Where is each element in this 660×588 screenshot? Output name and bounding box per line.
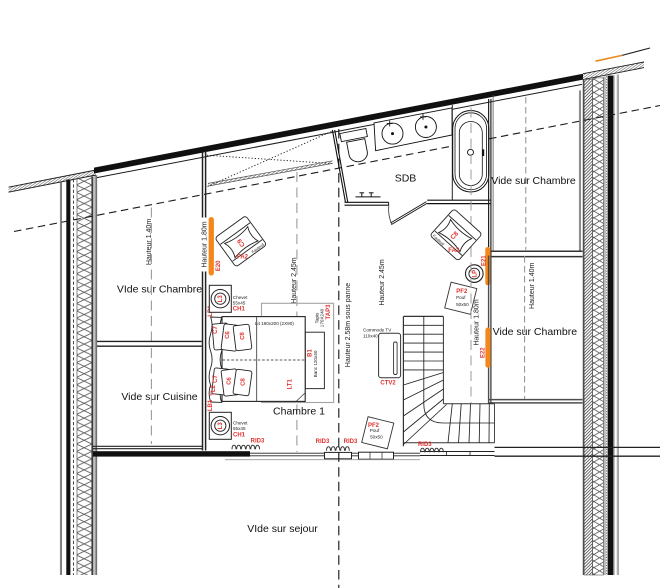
svg-text:Commode TV: Commode TV (363, 327, 392, 332)
svg-text:55x45: 55x45 (233, 426, 246, 431)
svg-text:FA2: FA2 (237, 254, 249, 260)
svg-text:50x50: 50x50 (456, 302, 469, 307)
svg-text:C6: C6 (225, 330, 232, 339)
svg-text:C7: C7 (213, 375, 219, 383)
svg-text:E20: E20 (216, 260, 222, 271)
svg-text:E21: E21 (482, 255, 488, 266)
svg-text:Hauteur 2.45m: Hauteur 2.45m (379, 259, 386, 305)
svg-text:CH1: CH1 (233, 433, 246, 439)
svg-text:Vide sur Chambre: Vide sur Chambre (493, 326, 578, 338)
svg-text:170X240: 170X240 (320, 308, 325, 327)
svg-text:Hauteur 2.58m sous panne: Hauteur 2.58m sous panne (345, 283, 352, 368)
svg-text:Hauteur 1.80m: Hauteur 1.80m (202, 221, 209, 267)
svg-text:E22: E22 (480, 347, 486, 358)
svg-text:VIde sur Chambre: VIde sur Chambre (117, 283, 202, 295)
svg-text:C6: C6 (226, 376, 232, 385)
svg-text:PF2: PF2 (456, 289, 468, 295)
svg-text:LB1: LB1 (208, 399, 214, 411)
svg-text:RID3: RID3 (418, 442, 432, 448)
svg-text:TAP3: TAP3 (326, 304, 332, 320)
svg-text:Hauteur 2.45m: Hauteur 2.45m (291, 257, 298, 303)
svg-text:SDB: SDB (395, 172, 417, 184)
svg-text:B1: B1 (307, 349, 313, 357)
svg-text:110x40: 110x40 (363, 333, 378, 338)
svg-text:VIde sur sejour: VIde sur sejour (247, 523, 318, 535)
svg-text:50x50: 50x50 (370, 435, 383, 440)
svg-text:Hauteur 1.40m: Hauteur 1.40m (146, 219, 153, 265)
svg-text:Chevet: Chevet (233, 421, 248, 426)
svg-text:CH1: CH1 (233, 307, 246, 313)
svg-text:Hauteur 1.40m: Hauteur 1.40m (529, 262, 536, 308)
svg-text:CTV2: CTV2 (380, 381, 396, 387)
svg-text:Vide sur Chambre: Vide sur Chambre (491, 175, 576, 187)
svg-text:RID3: RID3 (344, 439, 358, 445)
svg-text:Hauteur 1.80m: Hauteur 1.80m (474, 299, 481, 345)
svg-text:Chevet: Chevet (233, 295, 248, 300)
svg-text:L3: L3 (218, 295, 224, 303)
svg-text:C8: C8 (240, 331, 247, 340)
svg-text:Pouf: Pouf (370, 428, 380, 433)
svg-text:Vide sur Cuisine: Vide sur Cuisine (121, 391, 197, 403)
svg-text:FA2: FA2 (448, 248, 460, 254)
svg-text:55x45: 55x45 (233, 300, 246, 305)
svg-text:RID3: RID3 (316, 439, 330, 445)
svg-text:C7: C7 (213, 326, 219, 334)
svg-text:Lit 180x200 (2X90): Lit 180x200 (2X90) (255, 321, 294, 326)
svg-text:C8: C8 (240, 377, 246, 386)
svg-text:L3: L3 (218, 422, 224, 430)
svg-text:RID3: RID3 (251, 438, 265, 444)
svg-text:TL2: TL2 (211, 385, 217, 396)
svg-text:Chambre 1: Chambre 1 (273, 406, 325, 418)
svg-text:LP: LP (472, 270, 478, 278)
svg-text:Banc 120x40: Banc 120x40 (313, 350, 318, 377)
svg-text:LT1: LT1 (288, 379, 294, 390)
svg-text:Pouf: Pouf (456, 295, 466, 300)
